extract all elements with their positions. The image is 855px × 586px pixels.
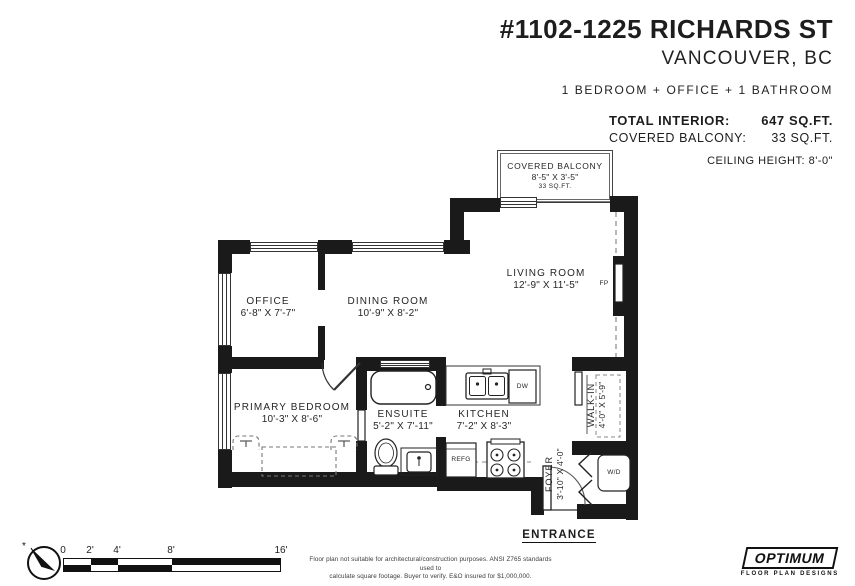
bathroom-sink xyxy=(401,448,437,475)
nightstand-lamps xyxy=(240,441,350,447)
fireplace-label: FP xyxy=(596,280,612,287)
room-label-kitchen: KITCHEN 7'-2" X 8'-3" xyxy=(434,409,534,432)
wall xyxy=(436,437,446,487)
svg-text:*: * xyxy=(22,541,26,552)
wall xyxy=(577,504,638,519)
bed-dashed xyxy=(233,436,357,476)
bedroom-door xyxy=(322,363,360,390)
window xyxy=(500,197,537,208)
scale-tick-label: 2' xyxy=(86,545,93,556)
wall xyxy=(318,254,325,290)
wall xyxy=(436,360,446,406)
optimum-logo: OPTIMUM FLOOR PLAN DESIGNS xyxy=(741,547,839,577)
window xyxy=(380,360,430,368)
wall xyxy=(218,472,446,487)
room-label-walk-in: WALK-IN 4'-0" X 5'-9" xyxy=(586,365,612,445)
bifold-doors xyxy=(579,452,592,505)
scale-tick-label: 8' xyxy=(167,545,174,556)
disclaimer-line: Floor plan not suitable for architectura… xyxy=(303,556,558,573)
room-label-dining-room: DINING ROOM 10'-9" X 8'-2" xyxy=(338,296,438,319)
room-label-office: OFFICE 6'-8" X 7'-7" xyxy=(218,296,318,319)
floor-plan: * COVERED BALCONY 8'-5" X 3'-5" 33 SQ.FT… xyxy=(0,0,855,586)
walk-in-door xyxy=(575,372,582,405)
disclaimer-line: calculate square footage. Buyer to verif… xyxy=(303,573,558,582)
scale-tick-label: 4' xyxy=(113,545,120,556)
wall xyxy=(228,357,324,369)
wall xyxy=(613,256,638,316)
room-label-covered-balcony: COVERED BALCONY 8'-5" X 3'-5" 33 SQ.FT. xyxy=(500,161,610,190)
wall xyxy=(318,240,352,254)
scale-tick-label: 16' xyxy=(274,545,287,556)
scale-bar-graphic xyxy=(63,558,281,572)
wall xyxy=(626,357,638,520)
north-arrow: * xyxy=(22,541,60,579)
bathtub xyxy=(371,371,436,404)
window xyxy=(250,242,318,252)
wall xyxy=(318,326,325,360)
toilet xyxy=(374,439,398,475)
room-label-primary-bedroom: PRIMARY BEDROOM 10'-3" X 8'-6" xyxy=(222,402,362,425)
logo-wordmark: OPTIMUM xyxy=(742,547,838,569)
fridge-label: REFG xyxy=(446,456,476,463)
wall xyxy=(610,196,638,212)
wall xyxy=(531,477,544,515)
disclaimer: Floor plan not suitable for architectura… xyxy=(303,556,558,582)
wall xyxy=(624,212,638,258)
washer-dryer-label: W/D xyxy=(598,469,630,476)
stove xyxy=(487,439,524,478)
dishwasher-label: DW xyxy=(509,383,536,390)
logo-tagline: FLOOR PLAN DESIGNS xyxy=(741,571,839,577)
kitchen-sink xyxy=(466,369,508,399)
room-label-living-room: LIVING ROOM 12'-9" X 11'-5" xyxy=(496,268,596,291)
wall xyxy=(437,477,543,491)
wall xyxy=(624,316,638,358)
wall xyxy=(450,198,500,212)
room-label-foyer: FOYER 3'-10" X 4'-0" xyxy=(544,434,570,514)
window xyxy=(352,242,444,252)
scale-tick-label: 0 xyxy=(60,545,66,556)
plan-fixtures: * xyxy=(0,0,855,586)
wall xyxy=(356,441,367,487)
entrance-label: ENTRANCE xyxy=(509,525,609,543)
wall xyxy=(218,240,250,254)
